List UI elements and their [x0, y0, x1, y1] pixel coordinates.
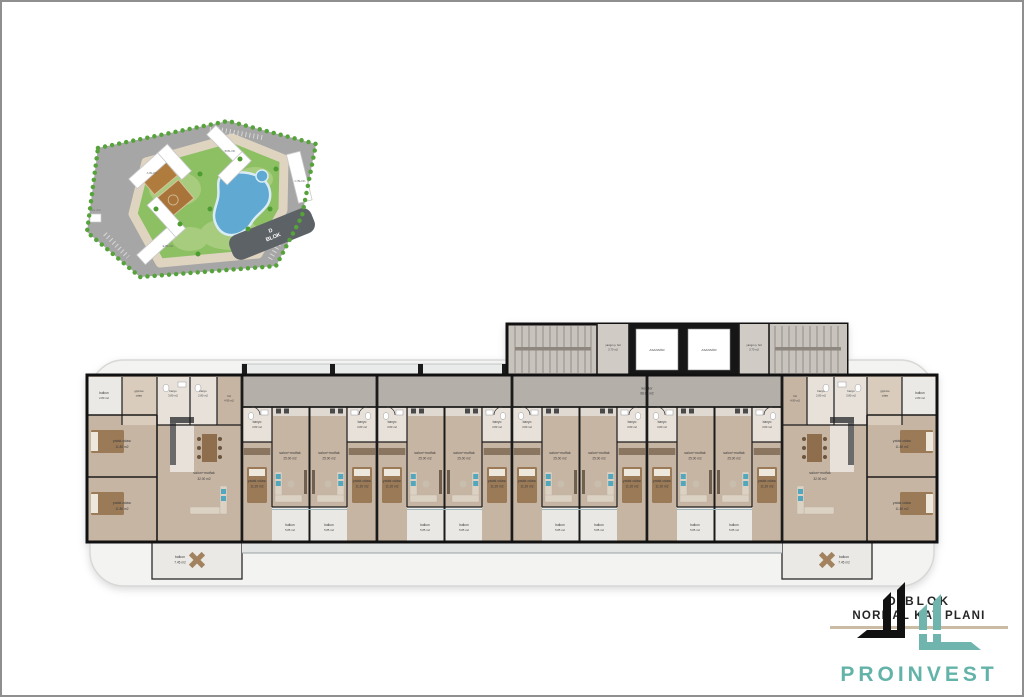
site-master-plan: D BLOK A BLOK B BLOK C BLOK E BLOK site … [80, 114, 328, 282]
svg-text:yatak odası: yatak odası [113, 439, 131, 443]
svg-text:hol: hol [793, 394, 797, 398]
corridor-floor [242, 375, 802, 407]
svg-text:balkon: balkon [839, 555, 849, 559]
fire-hall-right-label: yangın ş. hol [746, 343, 762, 347]
elevator-label-1: ASANSÖR [649, 348, 665, 352]
svg-text:salon+mutfak: salon+mutfak [809, 471, 831, 475]
fire-hall-left-label: yangın ş. hol [605, 343, 621, 347]
floor-plan: salon+mutfak 25.00 m2 salon+mutfak 25.00… [82, 302, 942, 592]
svg-text:32.00 m2: 32.00 m2 [197, 477, 211, 481]
corridor-window-band [242, 364, 507, 375]
svg-text:banyo: banyo [817, 389, 825, 393]
svg-text:32.00 m2: 32.00 m2 [813, 477, 827, 481]
svg-text:11.80 m2: 11.80 m2 [115, 445, 128, 449]
svg-text:giyinme: giyinme [134, 389, 144, 393]
svg-text:4.90 m2: 4.90 m2 [224, 399, 234, 403]
svg-text:banyo: banyo [199, 389, 207, 393]
svg-text:balkon: balkon [915, 391, 925, 395]
elevator-shaft [629, 324, 739, 375]
svg-text:banyo: banyo [847, 389, 855, 393]
svg-text:11.80 m2: 11.80 m2 [895, 507, 908, 511]
svg-text:yatak odası: yatak odası [893, 439, 911, 443]
svg-text:2.80 m2: 2.80 m2 [816, 394, 826, 398]
site-block-c-label: C BLOK [294, 179, 305, 183]
fire-hall-left-area: 3.70 m2 [608, 348, 618, 352]
plan-sheet: D BLOK A BLOK B BLOK C BLOK E BLOK site … [0, 0, 1024, 697]
stair-right [769, 324, 847, 375]
proinvest-logo-icon [857, 576, 981, 672]
svg-text:yatak odası: yatak odası [113, 501, 131, 505]
svg-text:balkon: balkon [99, 391, 109, 395]
balcony-rail [242, 542, 782, 553]
svg-text:salon+mutfak: salon+mutfak [193, 471, 215, 475]
svg-text:hol: hol [227, 394, 231, 398]
svg-text:11.80 m2: 11.80 m2 [895, 445, 908, 449]
site-block-b-label: B BLOK [225, 149, 236, 153]
svg-text:7.45 m2: 7.45 m2 [174, 561, 186, 565]
site-spa-pool [256, 170, 268, 182]
svg-text:yatak odası: yatak odası [893, 501, 911, 505]
svg-text:4.90 m2: 4.90 m2 [790, 399, 800, 403]
svg-text:odası: odası [882, 394, 889, 398]
title-block: D BLOK NORMAL KAT PLANI PROINVEST [830, 594, 1008, 687]
svg-text:2.80 m2: 2.80 m2 [198, 394, 208, 398]
elevator-label-2: ASANSÖR [701, 348, 717, 352]
svg-text:giyinme: giyinme [880, 389, 890, 393]
svg-text:2.80 m2: 2.80 m2 [99, 396, 109, 400]
site-office [90, 214, 101, 222]
fire-hall-right-area: 3.70 m2 [749, 348, 759, 352]
svg-text:3.80 m2: 3.80 m2 [846, 394, 856, 398]
svg-text:odası: odası [136, 394, 143, 398]
core: ASANSÖR ASANSÖR yangın ş. hol 3.70 m2 ya… [507, 324, 847, 375]
site-block-e-label: E BLOK [163, 244, 174, 248]
svg-text:2.80 m2: 2.80 m2 [915, 396, 925, 400]
site-block-a-label: A BLOK [147, 171, 158, 175]
svg-text:7.45 m2: 7.45 m2 [838, 561, 850, 565]
site-office-label: site ofisi [91, 208, 101, 212]
svg-text:banyo: banyo [169, 389, 177, 393]
svg-text:3.80 m2: 3.80 m2 [168, 394, 178, 398]
svg-text:11.80 m2: 11.80 m2 [115, 507, 128, 511]
svg-text:balkon: balkon [175, 555, 185, 559]
